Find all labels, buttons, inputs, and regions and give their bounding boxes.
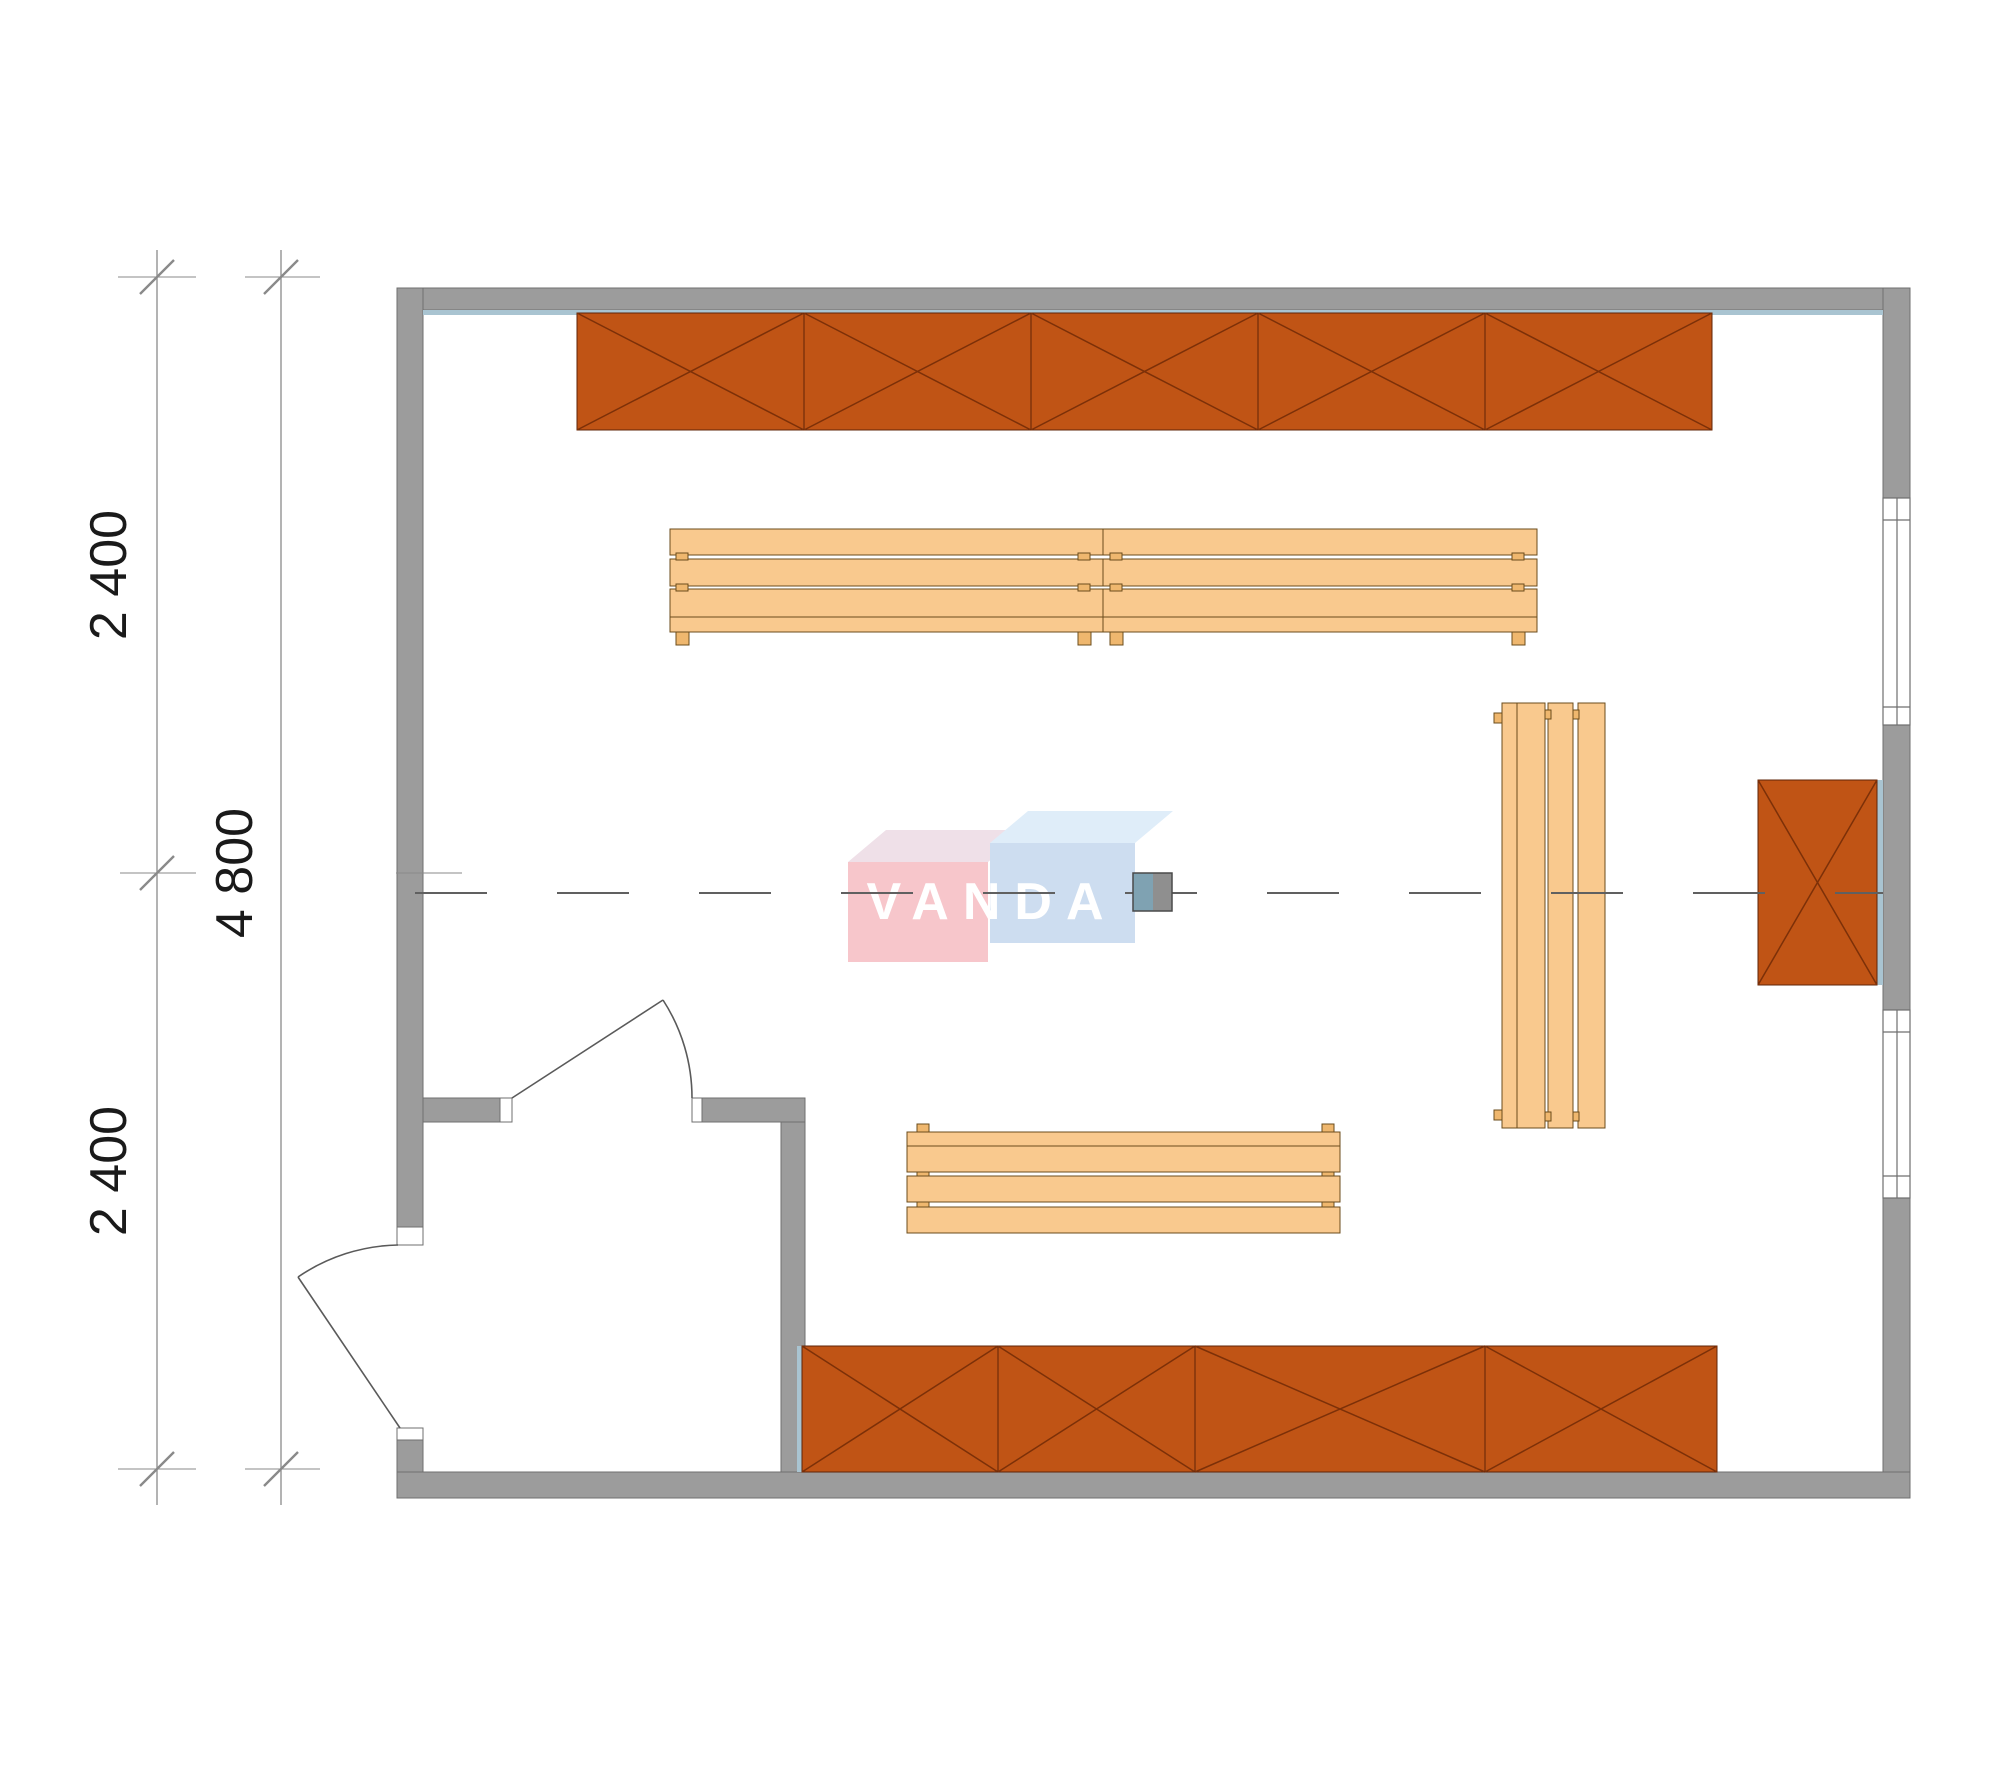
bench-foot: [1110, 632, 1123, 645]
bench-foot: [676, 584, 688, 591]
bench-rail: [1502, 703, 1517, 1128]
bench-foot: [1573, 710, 1579, 719]
door-leaf: [298, 1277, 400, 1428]
bench-foot: [1545, 1112, 1551, 1121]
bench-rail: [1103, 617, 1537, 632]
floor-plan-drawing: VANDA 2 400 2 400 4 800: [0, 0, 2000, 1786]
bench-foot: [676, 553, 688, 560]
bench-foot: [1078, 584, 1090, 591]
liner-right-wall: [1877, 780, 1883, 985]
exterior-door-jamb-bottom: [397, 1428, 423, 1440]
bench-slat: [1548, 703, 1573, 1128]
bench-foot: [1110, 553, 1122, 560]
bench-slat: [907, 1146, 1340, 1172]
bench-foot: [1512, 584, 1524, 591]
bench-foot: [917, 1124, 929, 1132]
window-lower: [1883, 1010, 1910, 1198]
bottom-wall-shelf: [802, 1346, 1717, 1472]
bench-foot: [1573, 1112, 1579, 1121]
door-leaf: [512, 1000, 663, 1098]
bench-slat: [1517, 703, 1545, 1128]
bench-foot: [1110, 584, 1122, 591]
bench-slat: [907, 1207, 1340, 1233]
bench-foot: [1494, 1110, 1502, 1120]
lower-bench: [907, 1124, 1340, 1233]
wall-right-upper: [1883, 288, 1910, 498]
wall-right-middle: [1883, 725, 1910, 1010]
vanda-watermark: VANDA: [848, 811, 1173, 962]
dimension-label-4800: 4 800: [206, 808, 264, 938]
exterior-door: [298, 1245, 400, 1428]
bench-slat: [670, 529, 1103, 555]
bench-foot: [1078, 553, 1090, 560]
right-bench: [1494, 703, 1605, 1128]
vestibule-wall-right-segment: [702, 1098, 805, 1122]
bench-foot: [1078, 632, 1091, 645]
bench-foot: [676, 632, 689, 645]
door-jambs: [397, 1098, 702, 1440]
center-fixture: [1133, 873, 1172, 911]
dimension-label-2400-bottom: 2 400: [80, 1106, 138, 1236]
bench-slat: [1103, 559, 1537, 586]
logo-box-top: [990, 811, 1173, 843]
bench-foot: [1512, 632, 1525, 645]
logo-text: VANDA: [866, 873, 1117, 931]
bench-rail: [907, 1132, 1340, 1146]
vestibule-door-jamb-left: [500, 1098, 512, 1122]
floor-plan-page: VANDA 2 400 2 400 4 800: [0, 0, 2000, 1786]
vestibule-walls: [423, 1098, 805, 1472]
upper-bench: [670, 529, 1537, 645]
bench-foot: [1494, 713, 1502, 723]
bench-slat: [1103, 589, 1537, 617]
window-upper: [1883, 498, 1910, 725]
vestibule-door-jamb-right: [692, 1098, 702, 1122]
bench-rail: [670, 617, 1103, 632]
bench-slat: [670, 559, 1103, 586]
wall-bottom: [397, 1472, 1910, 1498]
wall-left-upper: [397, 288, 423, 1227]
bench-foot: [1512, 553, 1524, 560]
vestibule-door: [512, 1000, 692, 1098]
door-swing-arc: [298, 1245, 398, 1277]
bench-slat: [907, 1176, 1340, 1202]
bench-slat: [670, 589, 1103, 617]
bench-foot: [1322, 1124, 1334, 1132]
door-swing-arc: [663, 1000, 692, 1098]
bench-slat: [1578, 703, 1605, 1128]
top-wall-shelf: [577, 313, 1712, 430]
right-wall-unit: [1758, 780, 1877, 985]
wall-top: [397, 288, 1910, 310]
liner-vestibule-wall: [797, 1346, 802, 1472]
exterior-door-jamb-top: [397, 1227, 423, 1245]
vestibule-wall-left-segment: [423, 1098, 500, 1122]
fixture-left-half: [1133, 873, 1153, 911]
dimension-label-2400-top: 2 400: [80, 510, 138, 640]
bench-foot: [1545, 710, 1551, 719]
wall-right-lower: [1883, 1198, 1910, 1498]
bench-slat: [1103, 529, 1537, 555]
